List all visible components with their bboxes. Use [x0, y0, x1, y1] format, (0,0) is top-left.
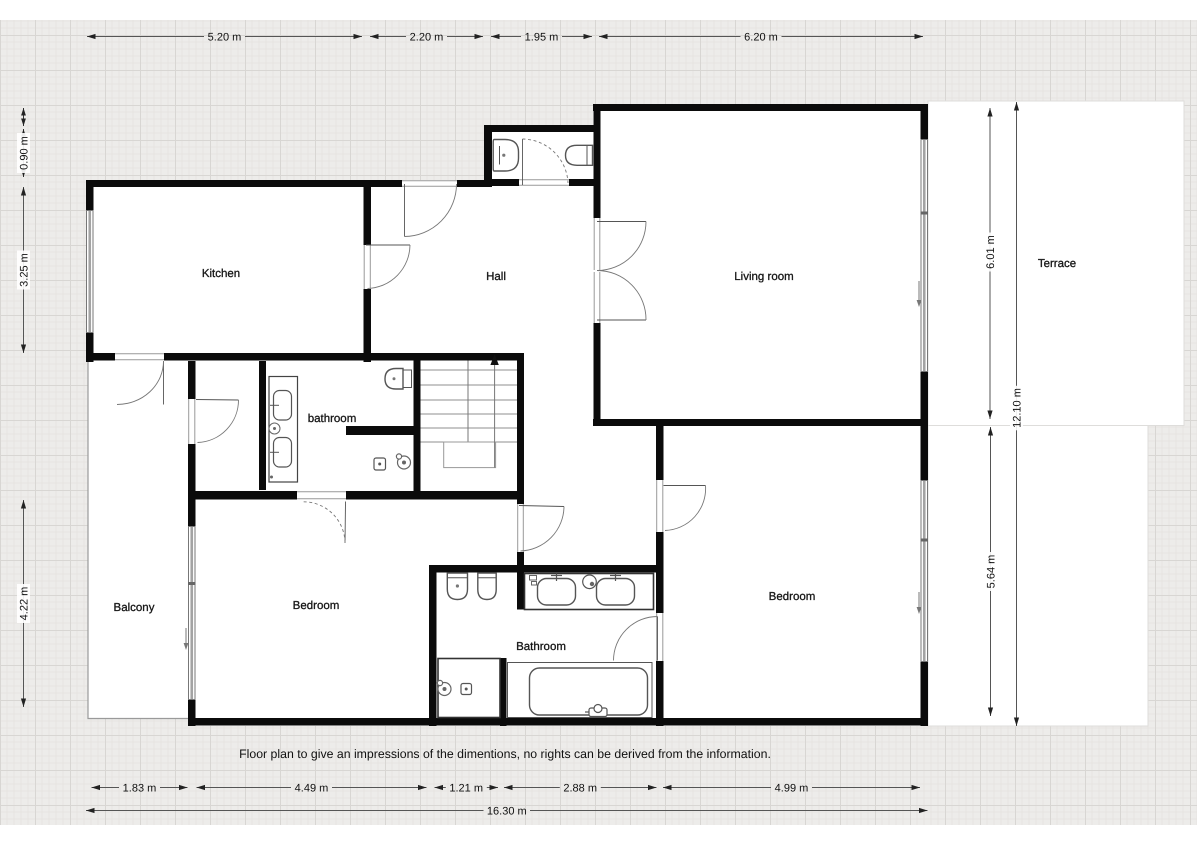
svg-text:12.10 m: 12.10 m — [1011, 388, 1023, 428]
svg-text:0.90 m: 0.90 m — [18, 136, 30, 170]
svg-text:Bedroom: Bedroom — [769, 591, 816, 603]
svg-text:Floor plan to give an impressi: Floor plan to give an impressions of the… — [239, 747, 771, 761]
svg-text:Kitchen: Kitchen — [202, 268, 240, 280]
svg-text:2.88 m: 2.88 m — [563, 783, 597, 795]
svg-text:6.20 m: 6.20 m — [744, 32, 778, 44]
svg-text:3.25 m: 3.25 m — [18, 253, 30, 287]
svg-text:1.95 m: 1.95 m — [525, 32, 559, 44]
svg-text:6.01 m: 6.01 m — [985, 235, 997, 269]
svg-text:Balcony: Balcony — [114, 602, 155, 614]
svg-text:1.21 m: 1.21 m — [449, 783, 483, 795]
svg-text:5.64 m: 5.64 m — [985, 555, 997, 589]
svg-text:Hall: Hall — [486, 271, 506, 283]
svg-text:4.99 m: 4.99 m — [775, 783, 809, 795]
svg-text:5.20 m: 5.20 m — [208, 32, 242, 44]
svg-text:2.20 m: 2.20 m — [410, 32, 444, 44]
svg-text:Living room: Living room — [734, 271, 793, 283]
svg-text:16.30 m: 16.30 m — [487, 806, 527, 818]
svg-text:Bedroom: Bedroom — [293, 600, 340, 612]
svg-text:4.49 m: 4.49 m — [295, 783, 329, 795]
svg-text:1.83 m: 1.83 m — [123, 783, 157, 795]
svg-text:bathroom: bathroom — [308, 413, 357, 425]
svg-text:4.22 m: 4.22 m — [18, 587, 30, 621]
svg-text:Bathroom: Bathroom — [516, 641, 566, 653]
svg-text:Terrace: Terrace — [1038, 258, 1076, 270]
